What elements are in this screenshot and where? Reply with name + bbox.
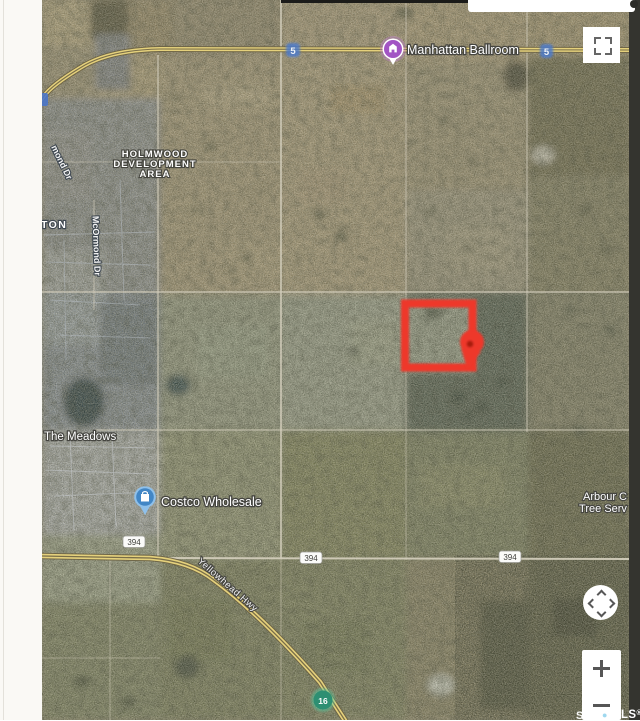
svg-text:5: 5	[290, 46, 296, 57]
svg-text:16: 16	[318, 696, 328, 706]
svg-text:McOrmond Dr: McOrmond Dr	[91, 216, 103, 277]
svg-text:Tree Serv: Tree Serv	[579, 503, 627, 515]
svg-text:TON: TON	[42, 219, 67, 231]
svg-text:394: 394	[127, 538, 141, 547]
svg-text:394: 394	[304, 554, 318, 563]
svg-text:Manhattan Ballroom: Manhattan Ballroom	[407, 43, 519, 57]
svg-text:The Meadows: The Meadows	[44, 431, 116, 443]
svg-text:Costco Wholesale: Costco Wholesale	[161, 495, 262, 509]
svg-text:Arbour C: Arbour C	[583, 491, 627, 503]
svg-text:394: 394	[503, 553, 517, 562]
svg-text:AREA: AREA	[140, 169, 171, 180]
svg-text:5: 5	[544, 47, 550, 58]
